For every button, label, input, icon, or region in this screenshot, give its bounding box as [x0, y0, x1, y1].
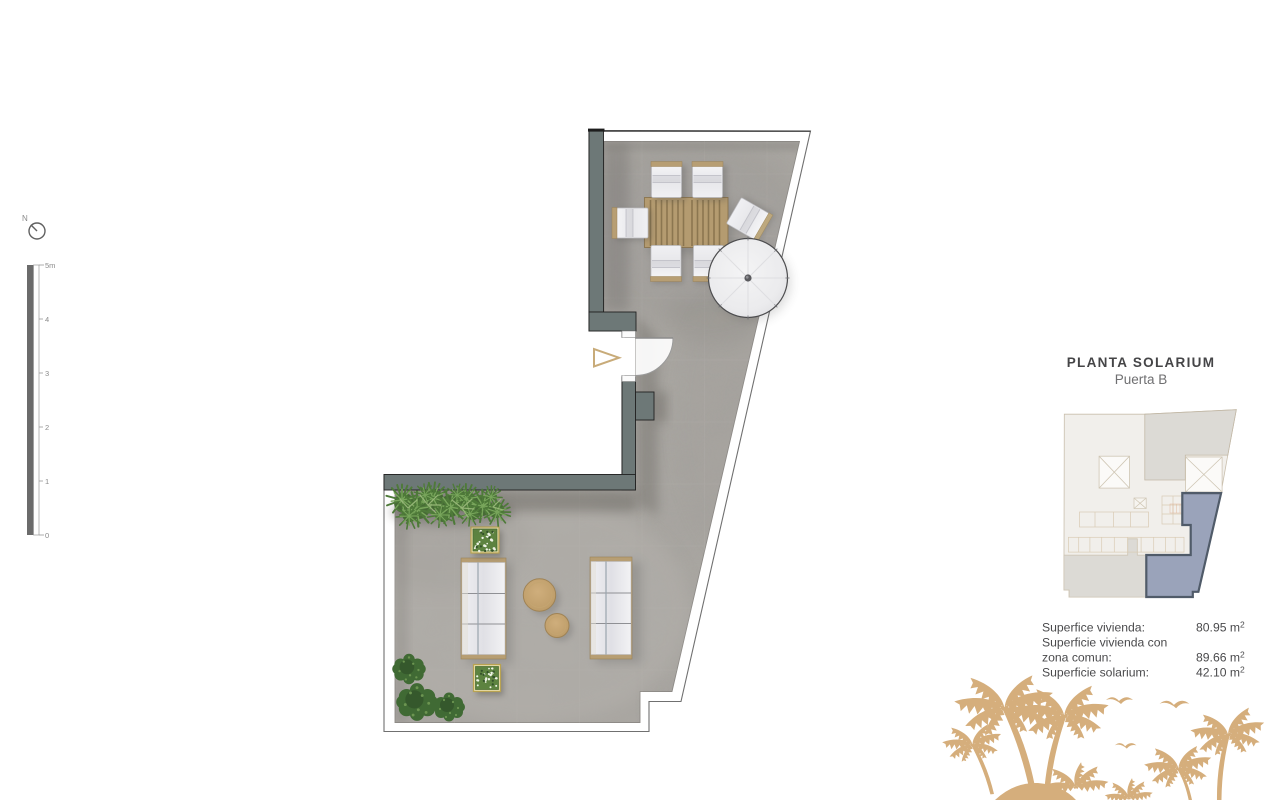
svg-text:4: 4	[45, 315, 49, 324]
svg-text:0: 0	[45, 531, 49, 540]
svg-text:42.10 m2: 42.10 m2	[1196, 665, 1245, 680]
svg-text:Superfice vivienda:: Superfice vivienda:	[1042, 621, 1145, 635]
svg-text:80.95 m2: 80.95 m2	[1196, 620, 1245, 635]
svg-text:1: 1	[45, 477, 49, 486]
svg-text:PLANTA SOLARIUM: PLANTA SOLARIUM	[1067, 355, 1216, 370]
svg-text:Puerta B: Puerta B	[1115, 372, 1168, 387]
svg-text:89.66 m2: 89.66 m2	[1196, 650, 1245, 665]
svg-text:5m: 5m	[45, 261, 55, 270]
svg-text:Superficie solarium:: Superficie solarium:	[1042, 666, 1149, 680]
svg-text:Superficie vivienda con: Superficie vivienda con	[1042, 636, 1167, 650]
svg-text:N: N	[22, 214, 28, 223]
svg-text:2: 2	[45, 423, 49, 432]
svg-text:zona comun:: zona comun:	[1042, 651, 1112, 665]
svg-text:3: 3	[45, 369, 49, 378]
